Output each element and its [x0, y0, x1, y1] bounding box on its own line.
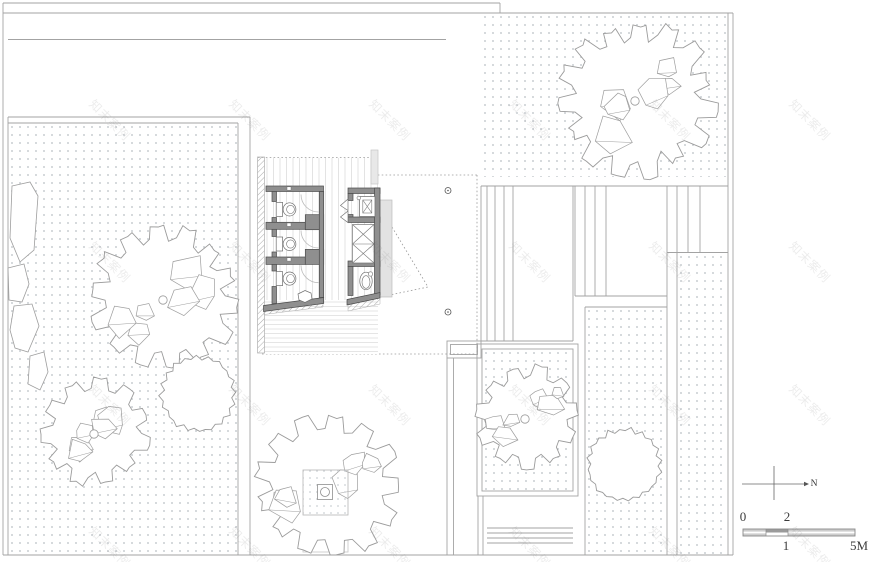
rock — [657, 58, 676, 77]
scale-bar — [743, 529, 855, 536]
east-tree-round — [587, 428, 662, 501]
scale-label-1: 1 — [783, 538, 790, 554]
rock — [10, 304, 39, 352]
site-plan: 0 2 1 5M N 知末案例知末案例知末案例知末案例知末案例知末案例知末案例知… — [0, 0, 880, 562]
scale-label-2: 2 — [784, 509, 791, 525]
rock — [10, 182, 38, 262]
rock — [8, 264, 29, 302]
plan-drawing — [0, 0, 880, 562]
rock — [28, 352, 48, 390]
scale-label-0: 0 — [740, 509, 747, 525]
north-arrow — [742, 466, 809, 500]
scale-label-5m: 5M — [850, 538, 868, 554]
north-label: N — [811, 479, 818, 489]
